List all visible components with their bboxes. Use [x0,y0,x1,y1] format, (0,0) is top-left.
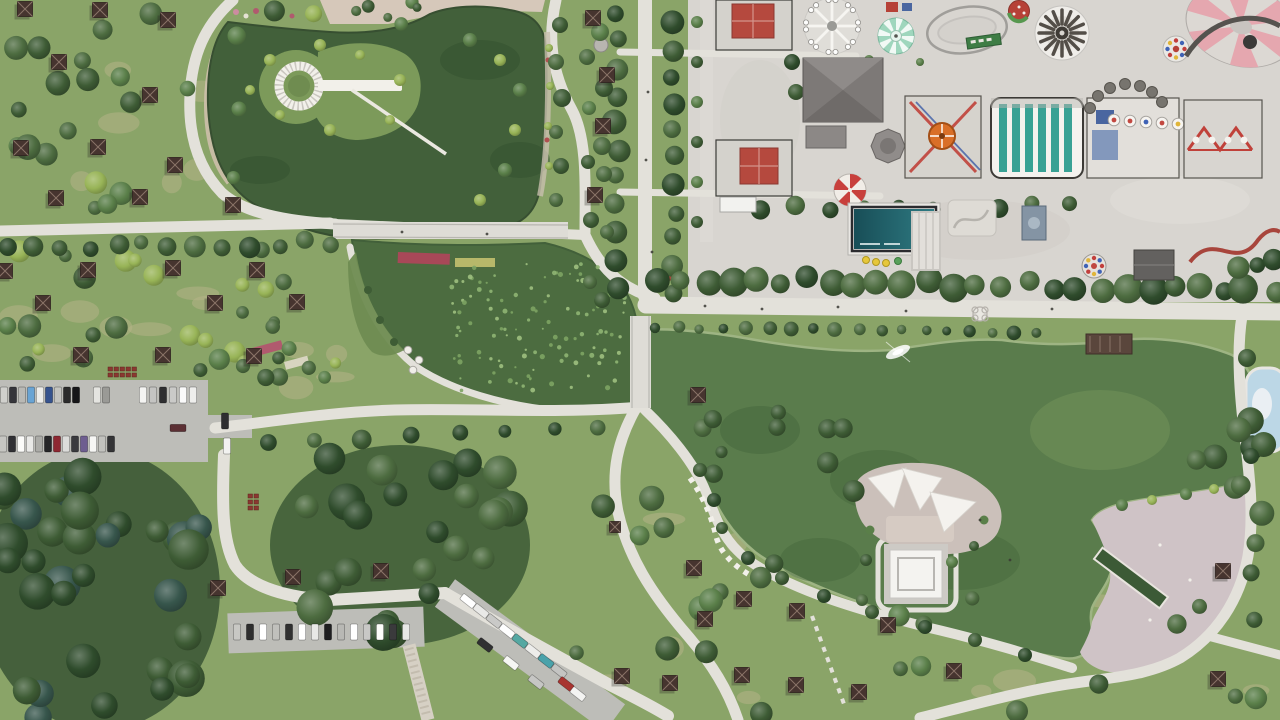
lily-pad [477,287,482,292]
car [324,624,331,640]
tree [673,321,685,333]
tree [334,558,362,586]
tree [795,265,818,288]
lily-pad [517,336,522,341]
picnic-table [254,506,259,510]
tree [314,39,326,51]
flower-bed-yellow [455,258,495,267]
tree [1247,534,1265,552]
lily-pad [468,275,473,280]
tree [513,83,527,97]
car [107,436,114,452]
person-dot [979,519,982,522]
lily-pad [503,309,508,314]
tree [180,81,196,97]
gazebo [684,561,702,579]
tree [969,541,979,551]
tree [96,523,121,548]
lily-pad [532,369,534,371]
spinner-ride [1163,36,1189,62]
tree [663,120,681,138]
tree [1243,448,1259,464]
tree [76,68,99,91]
tree [655,636,679,660]
tree [1020,271,1040,291]
tree [343,500,372,529]
tree [1249,501,1274,526]
white-container-truck [720,197,756,212]
tree [403,427,420,444]
gazebo [1213,564,1231,582]
lily-pad [500,299,503,302]
tree [569,645,584,660]
red-truss-ride [1184,100,1262,178]
tree [768,419,785,436]
tree [428,460,458,490]
tree [581,155,595,169]
tree [939,274,968,303]
flower-dot [545,138,550,143]
tree [143,265,164,286]
tree [583,275,597,289]
tree [483,456,517,490]
car [298,624,305,640]
picnic-table [108,367,113,371]
tree [351,6,361,16]
car [62,436,69,452]
car [54,387,61,403]
tree [236,306,249,319]
tree [110,235,130,255]
tree [93,20,113,40]
shrub [376,316,384,324]
lily-pad [603,348,607,352]
lily-pad [461,280,464,283]
tree [383,13,392,22]
tree [694,325,703,334]
lily-pad [489,307,493,311]
lily-pad [576,279,579,282]
tree [258,281,275,298]
picnic-table [120,367,125,371]
lily-pad [472,266,476,270]
tree [663,69,680,86]
gazebo [78,263,96,281]
gazebo [849,685,867,703]
paddle-boat [873,259,880,266]
lily-pad [459,377,461,379]
shrub [390,338,398,346]
tree [639,486,664,511]
person-dot [645,159,648,162]
car [80,436,87,452]
tree [691,56,703,68]
maze-attraction [948,200,996,236]
tree [822,202,838,218]
tree [498,163,512,177]
tree [83,241,99,257]
lily-pad [515,382,518,385]
lily-pad [579,262,583,266]
gazebo [786,678,804,696]
lily-pad [515,329,517,331]
car [311,624,318,640]
tree [704,410,722,428]
picnic-table [126,373,131,377]
car [259,624,266,640]
tree [1187,450,1207,470]
lily-pad [514,366,516,368]
car [53,436,60,452]
person-dot [905,310,908,313]
tree [324,124,336,136]
lily-pad [499,364,503,368]
picnic-table [248,494,253,498]
flower-bed-red [398,252,450,265]
carousel-mint-canopy [878,18,914,54]
gazebo [585,188,603,206]
car [221,413,228,429]
tree [750,567,772,589]
tree [426,521,448,543]
tree [296,231,314,249]
tree [691,216,703,228]
tree [413,558,436,581]
gazebo [878,618,896,636]
plaza-bench-dot [1158,543,1161,546]
tree [52,240,68,256]
tree [494,54,506,66]
car [44,436,51,452]
tree [865,605,879,619]
tower-ride [1022,206,1046,240]
tree [1231,475,1251,495]
car [18,387,25,403]
lily-pad [617,351,621,355]
lily-pad [574,337,577,340]
lily-pad [587,374,590,377]
car [8,436,15,452]
car [27,387,34,403]
car [272,624,279,640]
lily-pad [500,327,503,330]
tree [630,526,650,546]
tree [1243,564,1260,581]
tree [739,321,753,335]
tree [817,589,831,603]
lily-pad [580,332,584,336]
gazebo [223,198,241,216]
person-dot [647,91,650,94]
tree [965,591,979,605]
lily-pad [544,276,546,278]
tree [887,270,915,298]
tree [668,206,684,222]
picnic-table [254,494,259,498]
tree [355,50,365,60]
lily-pad [469,295,472,298]
tree [693,463,707,477]
lily-pad [526,263,528,265]
tree [671,271,690,290]
lily-pad [542,328,544,330]
striped-tent [991,98,1083,178]
tree [146,520,169,543]
person-dot [761,308,764,311]
lily-pad [460,389,464,393]
lily-pad [596,265,600,269]
lily-pad [489,357,492,360]
lily-pad [615,360,618,363]
gazebo [1208,672,1226,690]
paddle-boat [895,258,902,265]
tree [716,522,728,534]
tree [841,273,866,298]
tree [1062,277,1086,301]
lily-pad [522,384,525,387]
tree [264,54,276,66]
gazebo [287,295,305,313]
lily-pad [579,272,583,276]
tree [549,193,563,207]
tree [553,89,571,107]
car [179,387,186,403]
tree [607,5,624,22]
lily-pad [596,333,599,336]
tree [786,196,805,215]
lily-pad [492,371,495,374]
tree [827,322,842,337]
lily-pad [610,333,614,337]
tree [608,140,630,162]
tree [330,357,341,368]
person-dot [1009,559,1012,562]
tree [854,323,866,335]
picnic-table [132,373,137,377]
tree [352,430,372,450]
gazebo [165,158,183,176]
tree [771,274,790,293]
tree [46,71,71,96]
gazebo [734,592,752,610]
car [35,436,42,452]
tree [120,92,141,113]
tree [918,620,932,634]
planter [409,366,417,374]
lily-pad [488,380,492,384]
ride-car [1243,35,1257,49]
pendulum-ride-enclosure [905,96,981,178]
tree [367,455,398,486]
lily-pad [558,272,563,277]
car [17,436,24,452]
lily-pad [508,378,513,383]
park-walkway [700,0,713,242]
tree [548,54,564,70]
car [285,624,292,640]
lily-pad [623,301,626,304]
picnic-table [126,367,131,371]
tree [897,325,906,334]
tree [472,547,494,569]
gazebo [944,664,962,682]
tree [719,268,748,297]
person-dot [401,231,404,234]
tree [691,176,703,188]
paddle-boat [863,257,870,264]
lily-pad [453,357,456,360]
tree [13,677,41,705]
tree [318,371,331,384]
tree [51,581,76,606]
flower-dot [233,9,239,15]
lily-pad [618,335,621,338]
lily-pad [600,354,605,359]
picnic-table [108,373,113,377]
planter [415,356,423,364]
tree [877,325,888,336]
dry-grass-patch [61,300,100,323]
lily-pad [564,336,569,341]
tree [297,589,334,626]
lily-pad [456,326,460,330]
tree [214,239,231,256]
tree [239,237,260,258]
tree [245,85,255,95]
dry-grass-patch [98,112,140,133]
tree [111,67,130,86]
tree [180,325,201,346]
tree [18,314,41,337]
gazebo [88,140,106,158]
tree [314,443,346,475]
tree [691,16,703,28]
tree [413,3,422,12]
flower-dot [244,14,249,19]
pond-shade [780,538,860,582]
tree [154,579,187,612]
tree [383,482,407,506]
tree [86,327,101,342]
car [26,436,33,452]
gazebo [0,264,13,282]
tree [150,677,174,701]
tree [771,405,786,420]
tree [265,319,280,334]
tree [583,212,599,228]
tree [605,249,628,272]
tree [705,465,723,483]
lily-pad [468,321,472,325]
tree [817,452,838,473]
tree [911,656,931,676]
tree [1245,687,1267,709]
tree [302,361,316,375]
tree [158,237,177,256]
tree [1089,675,1108,694]
tree [645,268,670,293]
enclosure-red-building-south [716,140,792,196]
tree [1116,499,1128,511]
lily-pad [553,335,558,340]
concrete-mottle [1110,176,1250,224]
gazebo [660,676,678,694]
car [139,387,146,403]
tree [600,225,614,239]
car [170,424,186,431]
picnic-table [132,367,137,371]
flat-gray-building [1134,250,1174,280]
tree [548,422,561,435]
tree [59,122,76,139]
lily-pad [547,320,551,324]
lily-pad [478,281,481,284]
car [71,436,78,452]
gazebo [15,2,33,20]
gazebo [49,55,67,73]
gazebo [130,190,148,208]
car [63,387,70,403]
tree [553,158,569,174]
small-carousel [1082,254,1106,278]
lily-pad [597,361,601,365]
tree [232,102,247,117]
tree [663,93,685,115]
car [169,387,176,403]
car [189,387,196,403]
person-dot [486,233,489,236]
tree [650,323,660,333]
car [0,387,7,403]
tree [175,663,200,688]
tree [594,292,610,308]
tree [61,492,99,530]
gazebo [593,119,611,137]
car [0,436,7,452]
tree [1246,612,1262,628]
tree [11,102,27,118]
tree [134,235,148,249]
tree [1018,648,1032,662]
tree [1250,257,1266,273]
enclosure-red-building-north [716,0,792,50]
car [233,624,240,640]
tree [1062,196,1077,211]
lily-pad [593,346,596,349]
tree [1007,326,1022,341]
picnic-table [114,373,119,377]
lily-pad [531,306,536,311]
tree [788,84,804,100]
aerial-park-photo [0,0,1280,720]
lily-pad [585,313,589,317]
lily-pad [493,274,496,277]
car [45,387,52,403]
tree [273,239,288,254]
tree [227,171,240,184]
tree [1187,273,1213,299]
lily-pad [477,350,482,355]
car [246,624,253,640]
car [89,436,96,452]
person-dot [1051,308,1054,311]
tree [1044,279,1064,299]
car [376,624,383,640]
tree [545,162,553,170]
car [102,387,109,403]
tree [596,166,612,182]
tree [1228,689,1243,704]
